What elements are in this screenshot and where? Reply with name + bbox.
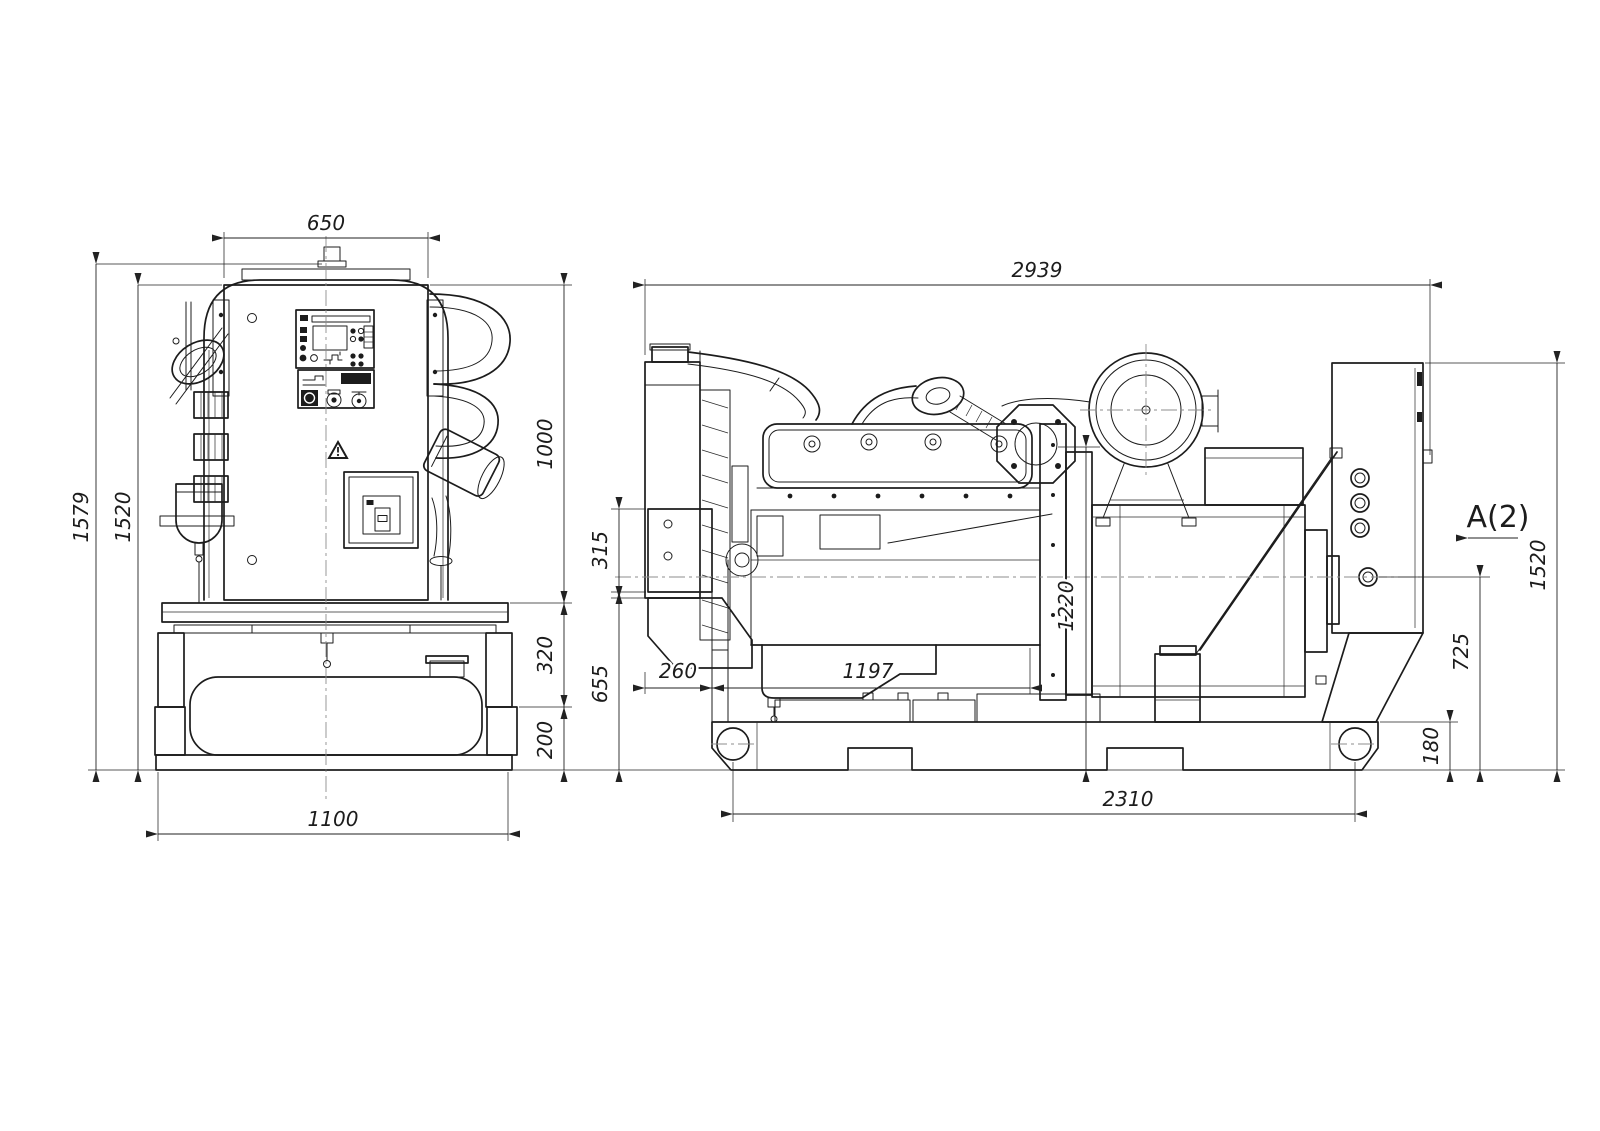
dim-side-bracket-height: 315 (588, 531, 612, 569)
view-label-text: A(2) (1466, 500, 1529, 535)
drawing-sheet: 650 1579 1520 1000 320 200 1100 (0, 0, 1600, 1131)
front-panel (213, 285, 443, 600)
dim-side-engine-length: 1197 (843, 659, 894, 683)
dim-side-front-offset: 260 (659, 659, 697, 683)
cabinet-handle (1423, 450, 1432, 463)
dim-front-height-overall: 1579 (69, 492, 93, 543)
dim-side-base-length: 2310 (1103, 787, 1154, 811)
battery (775, 700, 910, 722)
front-base-frame (155, 603, 517, 770)
side-base-frame (711, 693, 1378, 770)
radiator-bracket (648, 509, 712, 592)
dim-front-height-base: 200 (533, 721, 557, 759)
dim-front-height-upper: 1000 (533, 419, 557, 470)
view-label: A(2) (1466, 500, 1529, 538)
dim-front-height-body: 1520 (111, 492, 135, 543)
side-dimensions: 2939 315 655 260 1197 1220 2310 1520 (588, 258, 1565, 822)
dim-front-width-top: 650 (307, 211, 345, 235)
front-dimensions: 650 1579 1520 1000 320 200 1100 (69, 211, 572, 841)
battery (913, 700, 975, 722)
side-view: 2939 315 655 260 1197 1220 2310 1520 (588, 258, 1565, 822)
air-filter (1080, 344, 1218, 526)
connector-box (298, 370, 374, 408)
cabinet-stand (1322, 633, 1423, 722)
front-right-exhaust (422, 294, 510, 600)
exhaust-flange (997, 405, 1075, 483)
fuel-tank (190, 677, 482, 755)
control-panel (296, 310, 374, 368)
dim-side-front-height: 655 (588, 665, 612, 703)
dim-side-flywheel-height: 1220 (1054, 581, 1078, 632)
control-cabinet (1316, 363, 1432, 722)
dim-side-base-height: 180 (1419, 727, 1443, 765)
front-view: 650 1579 1520 1000 320 200 1100 (69, 211, 572, 841)
warning-triangle-icon (329, 442, 347, 458)
breaker-box (344, 472, 418, 548)
dim-side-length-overall: 2939 (1012, 258, 1063, 282)
dim-side-rear-height: 1520 (1526, 540, 1550, 591)
dim-front-width-base: 1100 (308, 807, 359, 831)
front-left-equipment (160, 302, 234, 603)
valve-cover (763, 424, 1032, 488)
dim-side-axis-height: 725 (1449, 633, 1473, 671)
support-strut (1155, 448, 1342, 722)
ribbed-coupler (194, 476, 228, 502)
alternator (1040, 424, 1339, 700)
ribbed-coupler (194, 434, 228, 460)
dim-front-height-frame: 320 (533, 636, 557, 674)
